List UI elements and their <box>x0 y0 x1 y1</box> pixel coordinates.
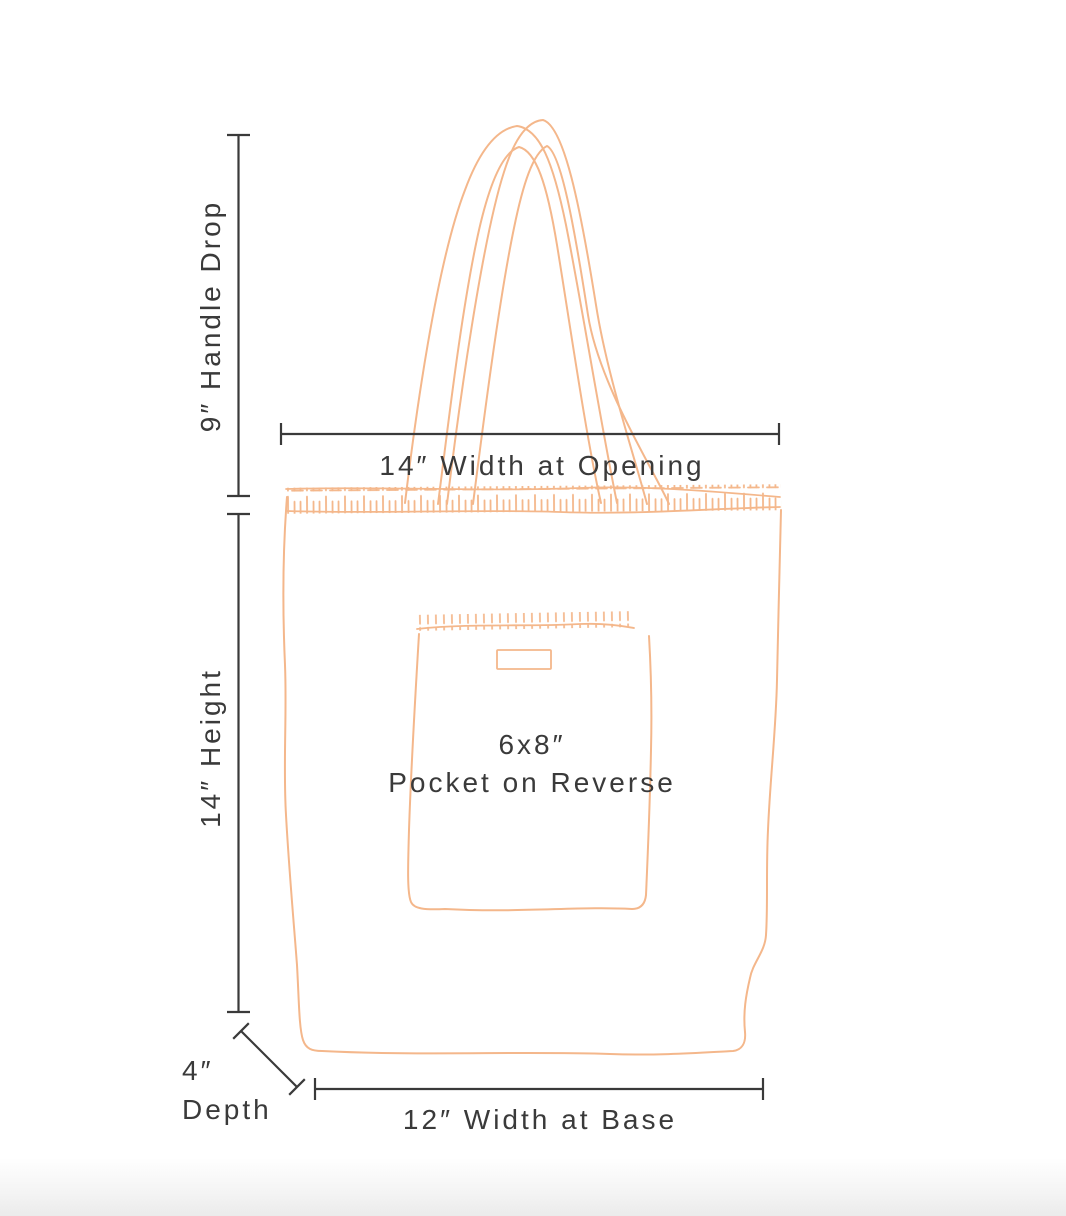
width-at-base-label: 12″ Width at Base <box>403 1104 677 1136</box>
handle-strap-front-outer <box>405 126 617 503</box>
width-at-opening-label: 14″ Width at Opening <box>379 450 704 482</box>
pocket-label-patch <box>497 650 551 669</box>
dimension-handle-drop <box>227 135 250 496</box>
dimension-width-base <box>315 1078 763 1100</box>
depth-caption-text: Depth <box>182 1090 272 1129</box>
tote-bag-line-art <box>0 0 1066 1216</box>
dimension-width-opening <box>281 423 779 445</box>
handle-strap-back-outer <box>447 120 647 504</box>
height-label: 14″ Height <box>195 668 227 828</box>
tote-bag-dimension-diagram: 9″ Handle Drop 14″ Width at Opening 14″ … <box>0 0 1066 1216</box>
bag-drawing <box>283 120 781 1055</box>
pocket-caption-text: Pocket on Reverse <box>388 764 676 802</box>
dimension-height <box>227 514 250 1012</box>
depth-label: 4″ Depth <box>182 1051 272 1129</box>
pocket-size-text: 6x8″ <box>388 726 676 764</box>
pocket-stitching <box>418 611 632 631</box>
handle-drop-label: 9″ Handle Drop <box>195 200 227 432</box>
pocket-label: 6x8″ Pocket on Reverse <box>388 726 676 802</box>
depth-value-text: 4″ <box>182 1051 272 1090</box>
bottom-fade-gradient <box>0 1158 1066 1216</box>
